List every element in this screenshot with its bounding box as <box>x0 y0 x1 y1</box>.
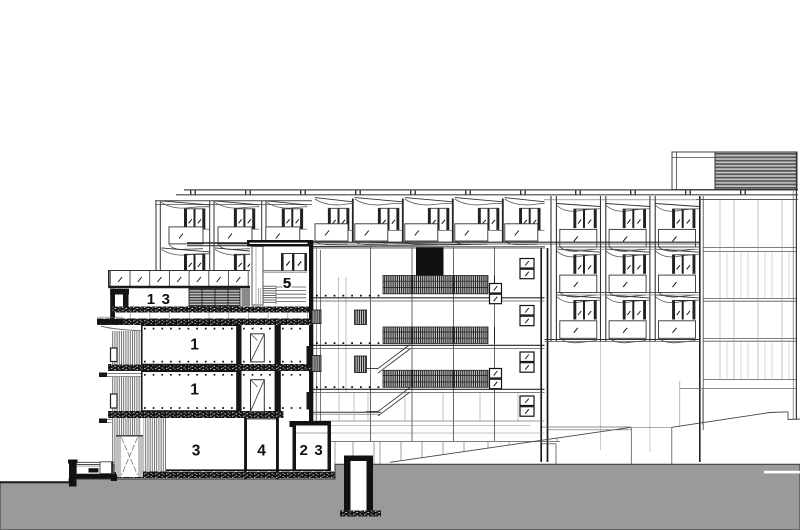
svg-text:1: 1 <box>190 337 199 354</box>
svg-text:1: 1 <box>190 382 199 399</box>
svg-text:1 3: 1 3 <box>147 291 171 308</box>
svg-text:4: 4 <box>257 442 266 459</box>
svg-text:2 3: 2 3 <box>299 442 323 459</box>
svg-text:5: 5 <box>283 275 291 292</box>
svg-text:3: 3 <box>192 443 201 460</box>
